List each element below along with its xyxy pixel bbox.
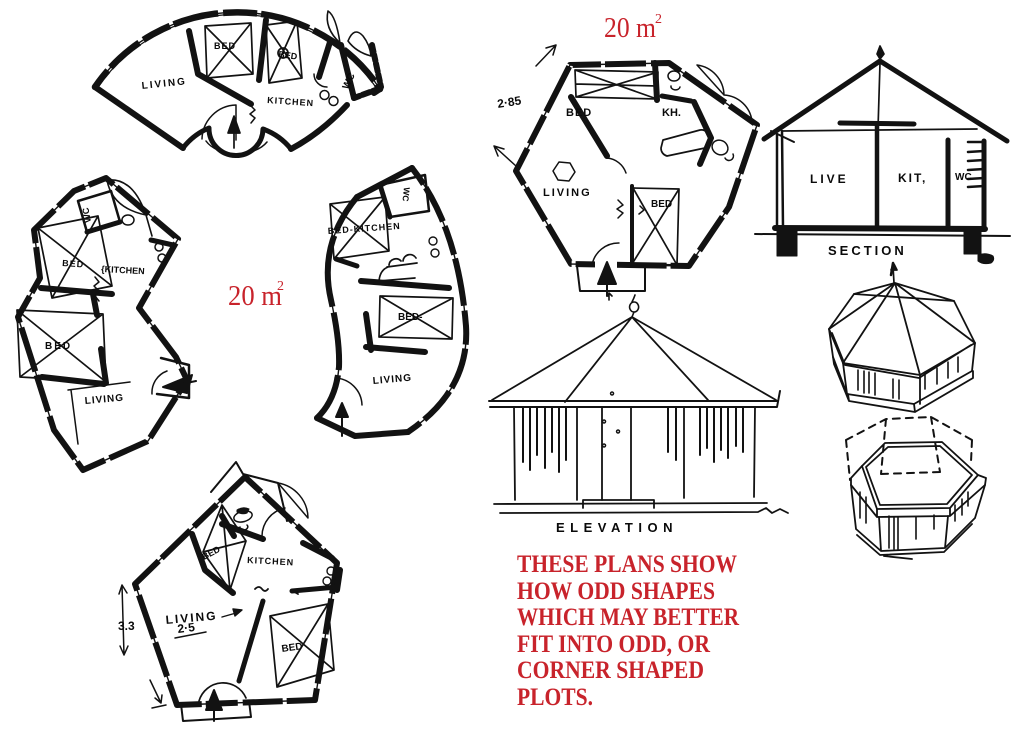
svg-text:BED-: BED- — [398, 312, 422, 323]
svg-text:2: 2 — [655, 12, 662, 27]
svg-text:KITCHEN: KITCHEN — [267, 95, 315, 108]
svg-text:WC: WC — [341, 72, 358, 92]
svg-text:LIVING: LIVING — [84, 393, 124, 407]
svg-text:KITCHEN: KITCHEN — [247, 555, 294, 567]
svg-text:KIT,: KIT, — [898, 171, 927, 185]
svg-text:BED: BED — [62, 258, 85, 270]
svg-text:BED: BED — [200, 544, 222, 562]
svg-text:WC: WC — [80, 206, 93, 223]
svg-text:BED: BED — [45, 341, 72, 352]
svg-text:HOW ODD SHAPES: HOW ODD SHAPES — [517, 578, 715, 605]
svg-text:3.3: 3.3 — [118, 619, 135, 633]
svg-text:BED: BED — [566, 107, 592, 119]
svg-text:LIVING: LIVING — [543, 187, 592, 199]
svg-text:BED: BED — [214, 41, 236, 51]
svg-text:ELEVATION: ELEVATION — [556, 520, 678, 535]
svg-text:WHICH MAY BETTER: WHICH MAY BETTER — [517, 604, 740, 631]
svg-text:BED: BED — [278, 49, 299, 62]
svg-text:PLOTS.: PLOTS. — [517, 684, 593, 711]
svg-text:WC: WC — [955, 172, 972, 183]
svg-text:WC: WC — [401, 187, 412, 202]
svg-text:2·85: 2·85 — [496, 93, 522, 111]
svg-text:FIT INTO ODD, OR: FIT INTO ODD, OR — [517, 631, 711, 658]
svg-text:BED: BED — [651, 199, 672, 210]
svg-text:LIVING: LIVING — [372, 373, 412, 387]
svg-text:BED: BED — [281, 641, 303, 655]
svg-text:CORNER SHAPED: CORNER SHAPED — [517, 657, 704, 684]
svg-text:THESE PLANS SHOW: THESE PLANS SHOW — [517, 551, 737, 578]
svg-text:20 m: 20 m — [228, 280, 282, 312]
svg-text:SECTION: SECTION — [828, 243, 907, 258]
svg-text:LIVE: LIVE — [810, 172, 849, 186]
svg-text:LIVING: LIVING — [141, 76, 187, 92]
svg-text:2·5: 2·5 — [177, 620, 196, 636]
svg-text:2: 2 — [277, 279, 284, 294]
svg-text:{KITCHEN: {KITCHEN — [101, 264, 145, 276]
svg-text:20 m: 20 m — [604, 12, 656, 44]
svg-text:KH.: KH. — [662, 107, 681, 119]
